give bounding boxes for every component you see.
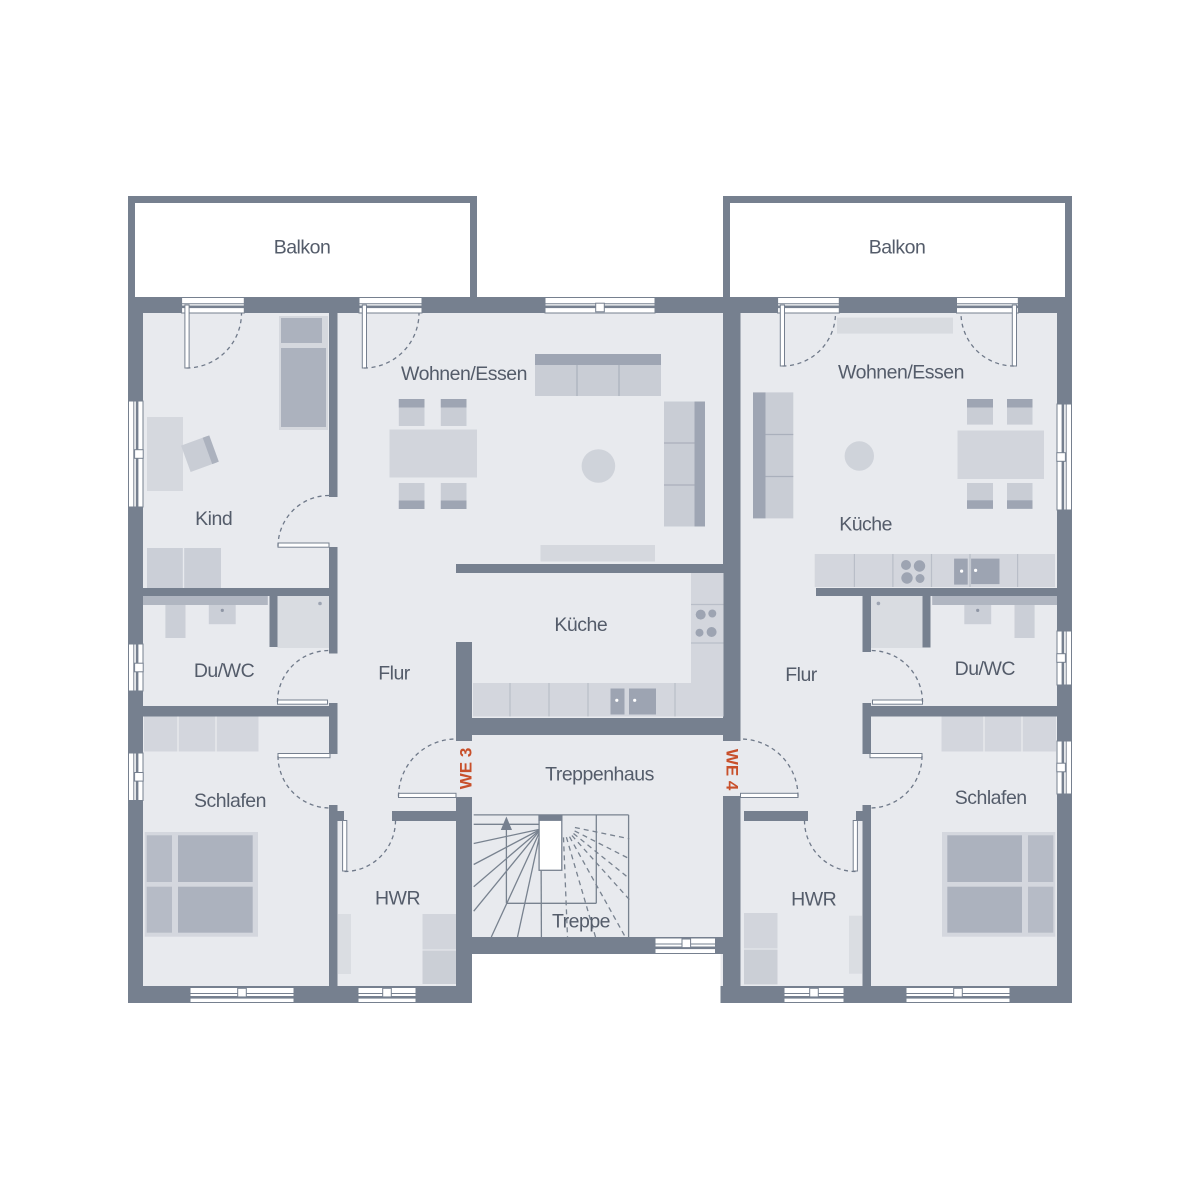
svg-text:Balkon: Balkon	[274, 237, 331, 259]
svg-text:Treppenhaus: Treppenhaus	[545, 764, 654, 786]
svg-text:Wohnen/Essen: Wohnen/Essen	[401, 363, 527, 385]
svg-text:Schlafen: Schlafen	[194, 790, 266, 812]
svg-text:Du/WC: Du/WC	[194, 660, 255, 682]
svg-text:HWR: HWR	[791, 889, 836, 911]
svg-text:Wohnen/Essen: Wohnen/Essen	[838, 362, 964, 384]
svg-text:Küche: Küche	[839, 514, 892, 536]
svg-text:Du/WC: Du/WC	[955, 658, 1016, 680]
svg-text:HWR: HWR	[375, 888, 420, 910]
svg-text:Schlafen: Schlafen	[955, 787, 1027, 809]
svg-text:WE 4: WE 4	[723, 749, 742, 791]
svg-text:WE 3: WE 3	[457, 748, 476, 790]
svg-text:Balkon: Balkon	[869, 237, 926, 259]
svg-text:Treppe: Treppe	[552, 911, 610, 933]
svg-text:Flur: Flur	[785, 664, 818, 686]
svg-text:Kind: Kind	[195, 508, 232, 530]
svg-text:Flur: Flur	[378, 663, 411, 685]
svg-text:Küche: Küche	[554, 614, 607, 636]
